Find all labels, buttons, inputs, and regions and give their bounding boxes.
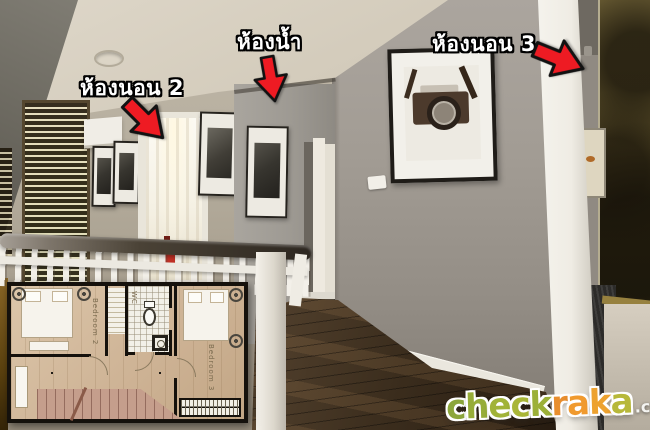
plan-bed [183, 289, 229, 341]
room-label-bedroom3: ห้องนอน 3 [432, 28, 536, 61]
plan-bookshelf [179, 398, 241, 417]
plan-closet [108, 288, 125, 334]
watermark-tld: .com [634, 396, 650, 416]
watermark-logo: checkraka.com [445, 380, 650, 428]
bird-icon [586, 156, 595, 162]
plan-fan-icon [12, 287, 26, 301]
plan-fan-icon [229, 288, 243, 302]
bathroom-doorframe [313, 138, 325, 306]
floorplan-inset: Bedroom 2 WC Bedroom 3 [7, 282, 248, 423]
plan-fan-icon [229, 334, 243, 348]
plan-bed [21, 288, 73, 338]
plan-fan-icon [77, 287, 91, 301]
plan-cabinet [15, 366, 28, 408]
plan-door-arc [177, 358, 196, 377]
plan-room-label-bedroom2: Bedroom 2 [91, 298, 99, 360]
camera-picture-frame [387, 47, 497, 184]
picture-frame [112, 141, 140, 204]
plan-toilet-icon [143, 308, 156, 326]
hallway-photo-scene: Bedroom 2 WC Bedroom 3 [0, 0, 650, 430]
bathroom-door [325, 144, 335, 308]
plan-door-arc [89, 356, 108, 375]
plan-door-arc [135, 352, 154, 371]
watermark-brand: checkraka [446, 398, 633, 423]
picture-frame [245, 126, 289, 219]
plan-sink-icon [152, 335, 168, 351]
railing-newel-post [256, 252, 286, 430]
downlight-icon [94, 50, 124, 67]
light-switch [367, 175, 386, 190]
plan-stairs [37, 389, 181, 419]
plan-toilet-tank [144, 301, 155, 308]
plan-room-label-wc: WC [130, 291, 138, 317]
camera-artwork [404, 65, 481, 161]
plan-dresser [29, 341, 69, 351]
